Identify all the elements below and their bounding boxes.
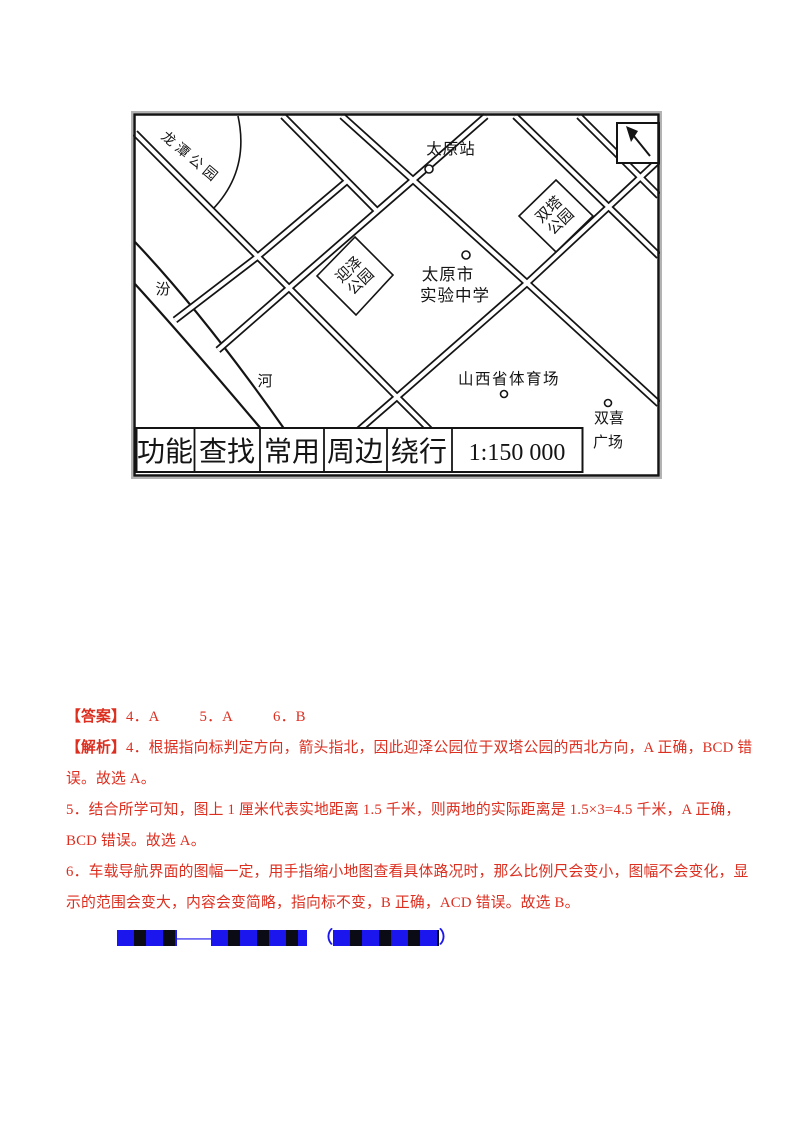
- analysis-line-4: BCD 错误。故选 A。: [66, 826, 766, 857]
- navigation-map-figure: 龙潭公园 迎泽 公园 双塔 公园 汾 河 太原站 太原市 实验中学: [131, 111, 662, 479]
- watermark-dash: ——: [177, 927, 211, 948]
- analysis-line-3: 5．结合所学可知，图上 1 厘米代表实地距离 1.5 千米，则两地的实际距离是 …: [66, 795, 766, 826]
- toolbar-button-changyong[interactable]: 常用: [264, 436, 320, 468]
- taiyuan-station-marker: [425, 165, 433, 173]
- analysis-text-5: 6．车载导航界面的图幅一定，用手指缩小地图查看具体路况时，那么比例尺会变小，图幅…: [66, 864, 748, 880]
- stadium-label: 山西省体育场: [458, 370, 560, 388]
- analysis-line-5: 6．车载导航界面的图幅一定，用手指缩小地图查看具体路况时，那么比例尺会变小，图幅…: [66, 857, 766, 888]
- nav-toolbar: 功能 查找 常用 周边 绕行 1:150 000: [137, 428, 583, 472]
- analysis-text-3: 5．结合所学可知，图上 1 厘米代表实地距离 1.5 千米，则两地的实际距离是 …: [66, 802, 740, 818]
- watermark-paren-open: （: [316, 927, 333, 948]
- watermark-paren-close: ）: [439, 927, 456, 948]
- analysis-header: 【解析】: [66, 740, 126, 756]
- answers-header: 【答案】: [66, 709, 126, 725]
- analysis-text-6: 示的范围会变大，内容会变简略，指向标不变，B 正确，ACD 错误。故选 B。: [66, 895, 580, 911]
- school-label-line1: 太原市: [422, 265, 475, 284]
- analysis-line-2: 误。故选 A。: [66, 764, 766, 795]
- answer-analysis-block: 【答案】4．A5．A6．B 【解析】4．根据指向标判定方向，箭头指北，因此迎泽公…: [66, 702, 766, 919]
- toolbar-button-gongneng[interactable]: 功能: [137, 436, 193, 468]
- analysis-text-2: 误。故选 A。: [66, 771, 156, 787]
- watermark-line: ——（）: [117, 927, 456, 948]
- redacted-segment: [117, 930, 177, 946]
- toolbar-button-raoxing[interactable]: 绕行: [391, 436, 447, 468]
- answer-item-5: 5．A: [199, 702, 232, 733]
- analysis-text-1: 4．根据指向标判定方向，箭头指北，因此迎泽公园位于双塔公园的西北方向，A 正确，…: [126, 740, 752, 756]
- answers-line: 【答案】4．A5．A6．B: [66, 702, 766, 733]
- analysis-line-6: 示的范围会变大，内容会变简略，指向标不变，B 正确，ACD 错误。故选 B。: [66, 888, 766, 919]
- redacted-segment: [211, 930, 307, 946]
- toolbar-button-chazhao[interactable]: 查找: [199, 436, 255, 468]
- river-label-fen: 汾: [155, 281, 170, 298]
- shuangxi-label-line1: 双喜: [594, 410, 624, 427]
- compass-box-frame: [617, 123, 659, 163]
- river-label-he: 河: [257, 373, 272, 390]
- answer-item-6: 6．B: [273, 702, 306, 733]
- redacted-segment: [333, 930, 439, 946]
- worksheet-page: 龙潭公园 迎泽 公园 双塔 公园 汾 河 太原站 太原市 实验中学: [0, 0, 800, 1132]
- navigation-map-svg: 龙潭公园 迎泽 公园 双塔 公园 汾 河 太原站 太原市 实验中学: [133, 113, 660, 477]
- school-marker: [462, 251, 470, 259]
- shuangxi-plaza-marker: [605, 400, 612, 407]
- analysis-text-4: BCD 错误。故选 A。: [66, 833, 206, 849]
- map-scale-value: 1:150 000: [469, 440, 566, 466]
- taiyuan-station-label: 太原站: [426, 140, 476, 158]
- shuangxi-label-line2: 广场: [593, 434, 623, 451]
- answer-item-4: 4．A: [126, 702, 159, 733]
- stadium-marker: [501, 391, 508, 398]
- school-label-line2: 实验中学: [420, 286, 490, 305]
- toolbar-button-zhoubian[interactable]: 周边: [327, 437, 383, 468]
- compass-box: [617, 123, 659, 163]
- analysis-line-1: 【解析】4．根据指向标判定方向，箭头指北，因此迎泽公园位于双塔公园的西北方向，A…: [66, 733, 766, 764]
